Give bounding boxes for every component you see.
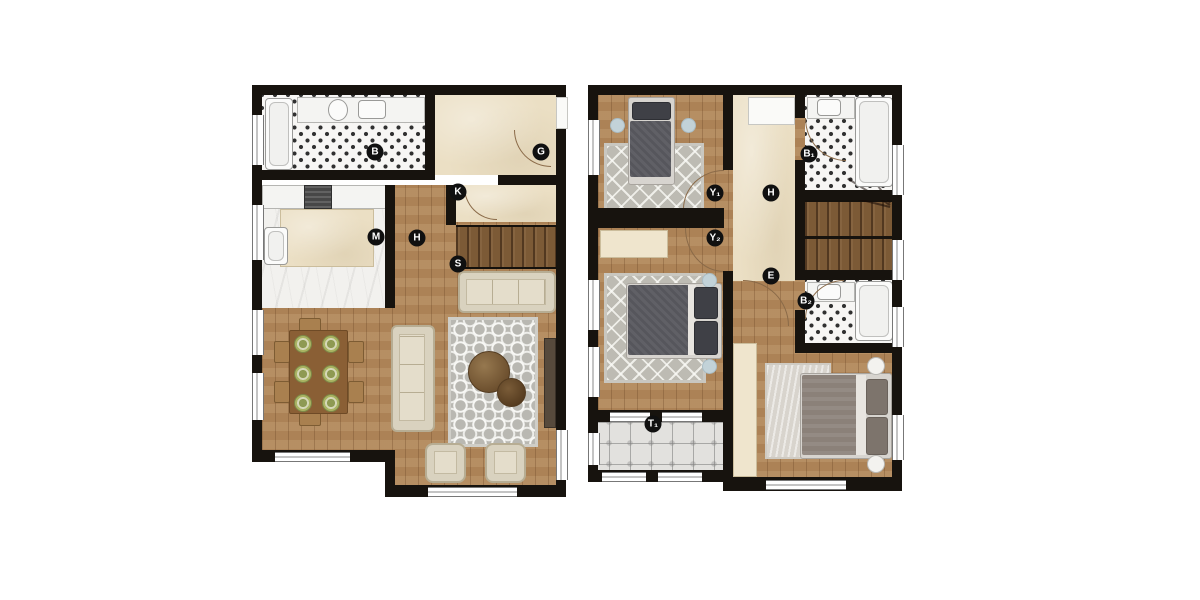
room-label-b2: B₂: [798, 293, 815, 310]
kitchen-sink: [264, 227, 288, 265]
stove: [304, 185, 332, 209]
window: [588, 120, 600, 175]
dining-chair: [274, 381, 290, 403]
nightstand: [867, 455, 885, 473]
room-label-y2: Y₂: [707, 230, 724, 247]
plate: [322, 335, 340, 353]
sofa-top: [458, 271, 556, 313]
window: [252, 205, 264, 260]
armchair: [425, 443, 466, 483]
pillow: [866, 379, 888, 415]
bedside-light: [610, 118, 625, 133]
dining-chair: [299, 412, 321, 426]
armchair-cushion: [434, 451, 457, 474]
room-label-b1: B₁: [801, 146, 818, 163]
window: [892, 415, 904, 460]
room-label-h: H: [409, 230, 426, 247]
window: [588, 280, 600, 330]
room-label-m: M: [368, 229, 385, 246]
wall-segment: [425, 95, 435, 170]
stairs-down: [456, 225, 556, 269]
window: [602, 472, 646, 482]
tub-basin: [859, 101, 889, 183]
pillow: [632, 102, 671, 120]
bathroom1-sink: [817, 99, 841, 116]
wall-segment: [385, 185, 395, 308]
bedroom2-wardrobe: [600, 230, 668, 258]
hall-closet: [748, 97, 795, 125]
window: [252, 115, 264, 165]
toilet: [328, 99, 348, 121]
dining-chair: [274, 341, 290, 363]
room-label-g: G: [533, 144, 550, 161]
blanket: [630, 121, 671, 177]
upper-floor-plan: Y₁ H B₁ Y₂ E B₂ T₁: [588, 85, 902, 497]
wall-segment: [588, 85, 902, 95]
plate: [294, 394, 312, 412]
bedside-light: [702, 359, 717, 374]
exterior-mask: [588, 482, 723, 497]
bathroom1-tub: [855, 97, 893, 187]
room-label-t1: T₁: [645, 416, 662, 433]
wall-segment: [252, 170, 435, 180]
tub-basin: [859, 285, 889, 337]
window: [662, 412, 702, 422]
blanket: [628, 285, 690, 355]
wall-segment: [723, 95, 733, 170]
pillow: [694, 321, 718, 355]
window: [892, 240, 904, 280]
tv-unit: [544, 338, 556, 428]
wall-segment: [805, 343, 902, 353]
pillow: [866, 417, 888, 455]
room-label-h: H: [763, 185, 780, 202]
wall-segment: [795, 270, 902, 280]
wall-segment: [498, 175, 556, 185]
dining-chair: [348, 381, 364, 403]
wall-segment: [723, 271, 733, 477]
armchair: [485, 443, 526, 483]
exterior-mask: [252, 462, 385, 497]
armchair-cushion: [494, 451, 517, 474]
sofa-cushions: [399, 334, 425, 421]
window: [588, 433, 600, 465]
window: [766, 480, 846, 490]
coffee-table-small: [497, 378, 526, 407]
plate: [322, 365, 340, 383]
room-label-e: E: [763, 268, 780, 285]
dining-chair: [348, 341, 364, 363]
room-label-s: S: [450, 256, 467, 273]
plate: [294, 365, 312, 383]
plate: [322, 394, 340, 412]
pillow: [694, 287, 718, 319]
wall-segment: [252, 85, 566, 95]
master-wardrobe: [733, 343, 757, 477]
window: [658, 472, 702, 482]
stair-landing-line: [805, 236, 892, 239]
window: [252, 310, 264, 355]
window: [428, 487, 517, 497]
window: [252, 373, 264, 420]
ground-floor-plan: B G K M H S: [252, 85, 566, 497]
kitchen-island: [280, 209, 374, 267]
wall-segment: [795, 160, 805, 190]
wall-segment: [795, 310, 805, 353]
entry-door-leaf: [556, 97, 568, 129]
sofa-cushions: [466, 279, 546, 305]
blanket: [802, 375, 858, 455]
window: [588, 347, 600, 397]
wall-segment: [795, 95, 805, 118]
wall-segment: [795, 200, 805, 270]
bathroom2-tub: [855, 281, 893, 341]
wall-segment: [795, 190, 902, 200]
plate: [294, 335, 312, 353]
nightstand: [867, 357, 885, 375]
bedside-light: [702, 273, 717, 288]
bathroom-sink: [358, 100, 386, 119]
window: [275, 452, 350, 462]
floorplan-canvas: B G K M H S: [0, 0, 1200, 600]
bedside-light: [681, 118, 696, 133]
wall-segment: [598, 208, 724, 228]
window: [892, 145, 904, 195]
bathtub-basin: [269, 102, 289, 166]
room-label-b: B: [367, 144, 384, 161]
room-label-k: K: [450, 184, 467, 201]
room-label-y1: Y₁: [707, 185, 724, 202]
bed-sheet: [856, 375, 866, 455]
kitchen-sink-basin: [268, 231, 284, 261]
window: [556, 430, 568, 480]
bathtub: [265, 98, 293, 170]
sofa-left: [391, 325, 435, 432]
window: [892, 307, 904, 347]
